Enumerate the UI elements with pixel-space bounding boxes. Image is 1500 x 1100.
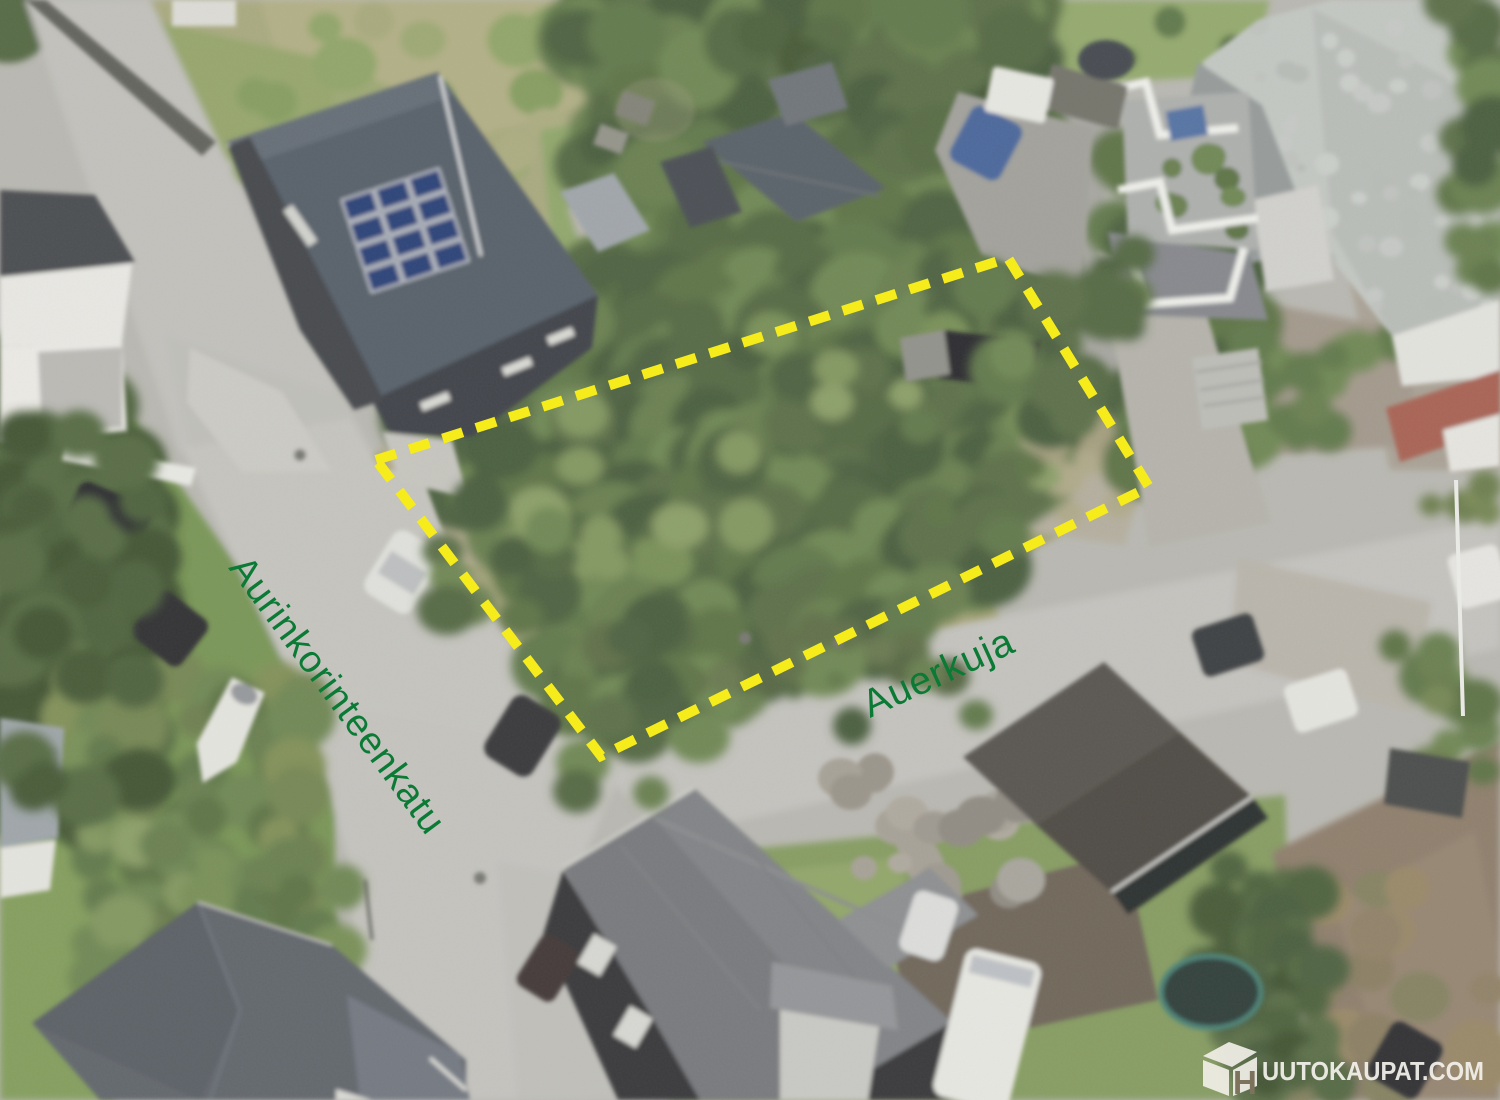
svg-text:H: H (1233, 1064, 1257, 1100)
svg-text:UUTOKAUPAT.COM: UUTOKAUPAT.COM (1262, 1056, 1484, 1086)
